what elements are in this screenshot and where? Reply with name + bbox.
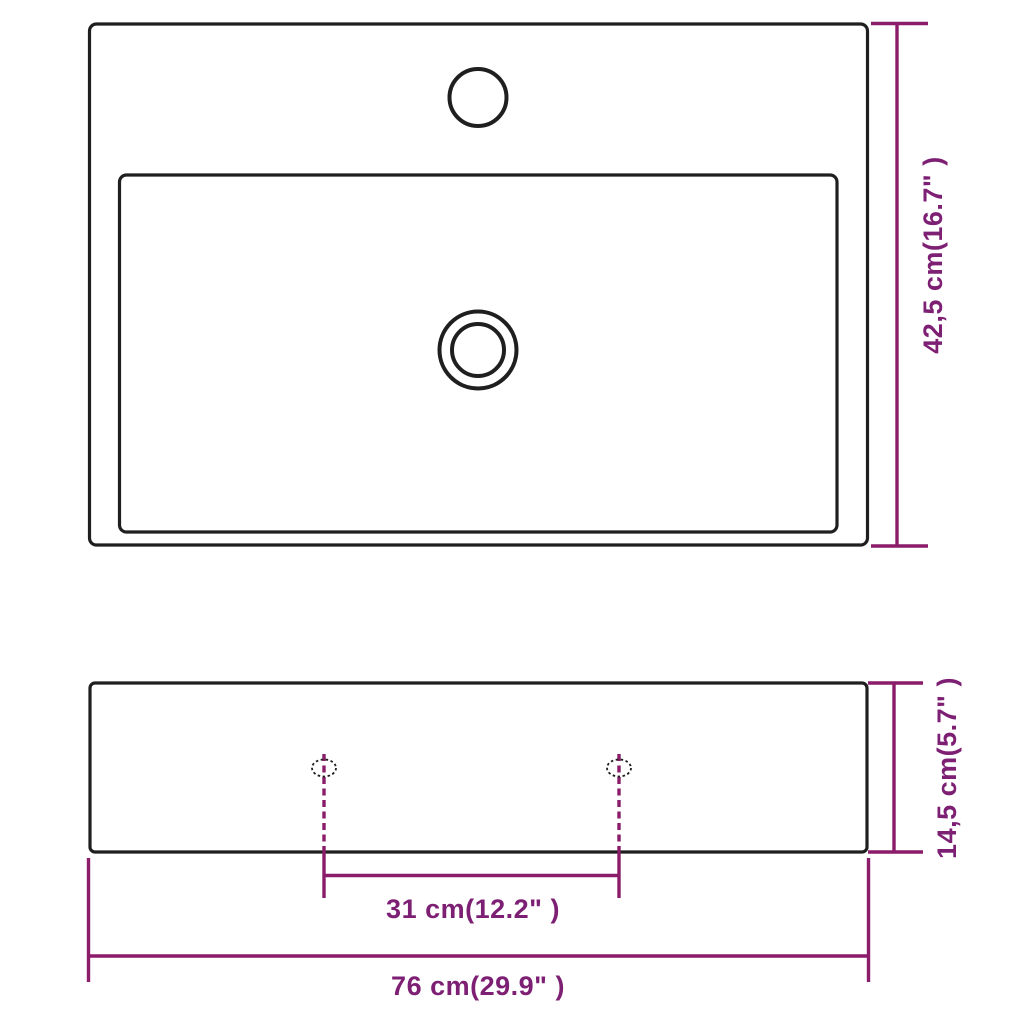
hole-spacing-dimension-label: 31 cm(12.2" ): [323, 891, 623, 927]
side-view-outline: [90, 683, 867, 852]
drain-inner-ring: [452, 324, 504, 376]
sink-dimension-diagram: 42,5 cm(16.7" ) 14,5 cm(5.7" ) 31 cm(12.…: [0, 0, 1024, 1024]
width-dimension-label: 76 cm(29.9" ): [328, 968, 628, 1004]
depth-dimension-label: 42,5 cm(16.7" ): [915, 105, 951, 405]
top-view-outer-outline: [90, 24, 868, 545]
faucet-hole: [450, 69, 507, 126]
diagram-linework: [0, 0, 1024, 1024]
height-dimension-label: 14,5 cm(5.7" ): [929, 618, 965, 918]
top-view-basin-outline: [120, 175, 838, 532]
